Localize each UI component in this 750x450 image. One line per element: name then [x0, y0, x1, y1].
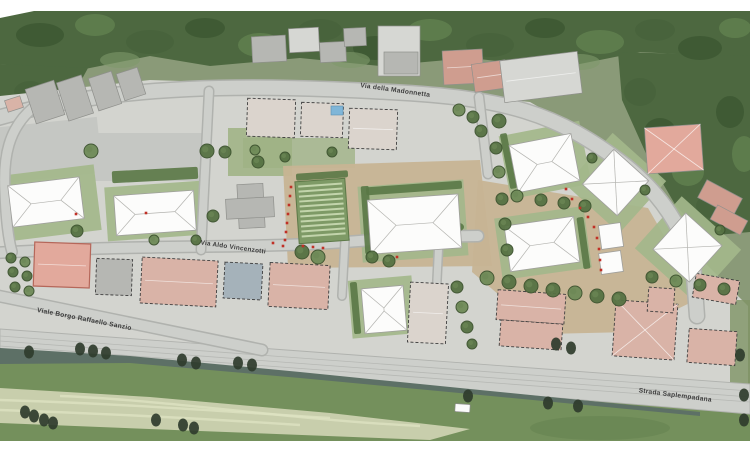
tree-highlight [648, 273, 653, 278]
tree-highlight [537, 196, 542, 201]
tree-highlight [589, 155, 594, 160]
garden-plots [295, 178, 349, 243]
tree-highlight [385, 257, 390, 262]
entrance-marker [284, 239, 287, 242]
tree-highlight [469, 341, 474, 346]
forest-clearing [100, 52, 140, 68]
dark-tree [191, 357, 201, 370]
dark-tree [739, 389, 749, 402]
truck [455, 404, 471, 413]
existing-roof [226, 197, 275, 219]
tree-highlight [513, 192, 518, 197]
existing-roof [319, 41, 346, 62]
site-plan-map: Via della Madonnetta Via Aldo Vincenzott… [0, 0, 750, 450]
tree-highlight [717, 227, 722, 232]
existing-building [223, 262, 263, 300]
tree-highlight [151, 237, 156, 242]
tree-highlight [492, 144, 497, 149]
entrance-marker [75, 213, 78, 216]
dark-tree [463, 390, 473, 403]
existing-roof [647, 287, 675, 313]
tree-highlight [494, 116, 500, 122]
existing-building [33, 242, 91, 288]
tree-highlight [720, 285, 725, 290]
tree-highlight [193, 237, 198, 242]
tree-highlight [26, 288, 31, 293]
tree-highlight [477, 127, 482, 132]
entrance-marker [312, 246, 315, 249]
tree-highlight [501, 220, 506, 225]
forest-canopy [185, 18, 225, 38]
existing-roof [288, 27, 319, 53]
dark-tree [24, 346, 34, 359]
site-plan-canvas: Via della Madonnetta Via Aldo Vincenzott… [0, 0, 750, 450]
existing-building [344, 27, 367, 46]
tree-highlight [696, 281, 701, 286]
tree-highlight [482, 273, 488, 279]
dark-tree [573, 400, 583, 413]
entrance-marker [599, 259, 602, 262]
tree-highlight [498, 195, 503, 200]
tree-highlight [282, 154, 287, 159]
existing-roof [95, 258, 132, 295]
tree-highlight [560, 199, 565, 204]
driveway [342, 240, 345, 296]
dark-tree [189, 422, 199, 435]
tree-highlight [313, 252, 319, 258]
dark-tree [735, 349, 745, 362]
existing-building [687, 328, 737, 365]
tree-highlight [581, 202, 586, 207]
dark-tree [551, 338, 561, 351]
entrance-marker [596, 237, 599, 240]
entrance-marker [587, 216, 590, 219]
white-roof-building [114, 190, 197, 235]
entrance-marker [145, 212, 148, 215]
forest-canopy [716, 96, 744, 128]
existing-building [644, 124, 703, 174]
tree-highlight [469, 113, 474, 118]
tree-highlight [297, 247, 303, 253]
entrance-marker [302, 245, 305, 248]
dark-tree [29, 410, 39, 423]
bottom-margin [0, 441, 750, 450]
tree-highlight [209, 212, 214, 217]
dark-tree [39, 414, 49, 427]
white-roof-building [598, 223, 623, 250]
existing-roof [384, 52, 418, 74]
entrance-marker [288, 204, 291, 207]
tree-highlight [453, 283, 458, 288]
entrance-marker [579, 207, 582, 210]
existing-building [407, 282, 448, 344]
top-margin [0, 0, 750, 11]
dark-tree [88, 345, 98, 358]
entrance-marker [289, 195, 292, 198]
forest-canopy [719, 18, 750, 38]
forest-canopy [576, 30, 624, 54]
tree-highlight [12, 284, 17, 289]
white-roof-building [504, 216, 580, 271]
existing-building [268, 262, 330, 309]
tree-highlight [202, 146, 208, 152]
tree-highlight [73, 227, 78, 232]
tree-highlight [455, 106, 460, 111]
dark-tree [178, 419, 188, 432]
dark-tree [48, 417, 58, 430]
tree-highlight [570, 288, 576, 294]
dark-tree [75, 343, 85, 356]
existing-roof [687, 328, 737, 365]
entrance-marker [593, 226, 596, 229]
forest-canopy [678, 36, 722, 60]
existing-building [251, 35, 286, 63]
forest-canopy [16, 23, 64, 47]
existing-building [647, 287, 675, 313]
tree-highlight [526, 281, 532, 287]
garden-block [295, 178, 349, 243]
tree-highlight [495, 168, 500, 173]
entrance-marker [282, 245, 285, 248]
tree-highlight [503, 246, 508, 251]
white-roof-building [361, 285, 407, 333]
tree-highlight [548, 285, 554, 291]
tree-highlight [642, 187, 647, 192]
dark-tree [20, 406, 30, 419]
existing-building [140, 257, 218, 307]
tree-highlight [368, 253, 373, 258]
existing-building [95, 258, 132, 295]
tree-highlight [463, 323, 468, 328]
existing-building [246, 98, 295, 138]
entrance-marker [565, 188, 568, 191]
truck-on-road [455, 404, 471, 413]
tree-highlight [592, 291, 598, 297]
dark-tree [151, 414, 161, 427]
tree-highlight [504, 277, 510, 283]
entrance-marker [272, 242, 275, 245]
entrance-marker [571, 198, 574, 201]
tree-highlight [252, 147, 257, 152]
forest-canopy [75, 14, 115, 36]
entrance-marker [287, 213, 290, 216]
tree-highlight [458, 303, 463, 308]
forest-canopy [126, 30, 174, 54]
existing-roof [223, 262, 263, 300]
entrance-marker [396, 256, 399, 259]
entrance-marker [600, 269, 603, 272]
dark-tree [566, 342, 576, 355]
white-roof-building [8, 177, 85, 227]
entrance-marker [598, 248, 601, 251]
tree-highlight [254, 158, 259, 163]
tree-highlight [221, 148, 226, 153]
existing-roof [246, 98, 295, 138]
building-roof [598, 223, 623, 250]
white-roof-building [599, 251, 624, 275]
tree-highlight [86, 146, 92, 152]
entrance-marker [285, 231, 288, 234]
existing-building [226, 197, 275, 219]
forest-canopy [624, 78, 656, 106]
tree-highlight [10, 269, 15, 274]
field-patch [530, 416, 670, 440]
dark-tree [739, 414, 749, 427]
dark-tree [543, 397, 553, 410]
swimming-pool [331, 106, 343, 115]
existing-building [319, 41, 346, 62]
tree-highlight [329, 149, 334, 154]
entrance-marker [290, 186, 293, 189]
existing-building [500, 51, 583, 102]
tree-highlight [672, 277, 677, 282]
existing-building [288, 27, 319, 53]
forest-canopy [635, 19, 675, 41]
white-roof-building [367, 194, 462, 254]
dark-tree [177, 354, 187, 367]
dark-tree [101, 347, 111, 360]
tree-highlight [8, 255, 13, 260]
tree-highlight [614, 294, 620, 300]
forest-canopy [525, 18, 565, 38]
existing-roof [344, 27, 367, 46]
existing-building [384, 52, 418, 74]
dark-tree [233, 357, 243, 370]
existing-roof [251, 35, 286, 63]
tree-highlight [24, 273, 29, 278]
building-roof [599, 251, 624, 275]
entrance-marker [322, 247, 325, 250]
dark-tree [247, 359, 257, 372]
existing-building [348, 108, 397, 150]
tree-highlight [22, 259, 27, 264]
entrance-marker [286, 222, 289, 225]
